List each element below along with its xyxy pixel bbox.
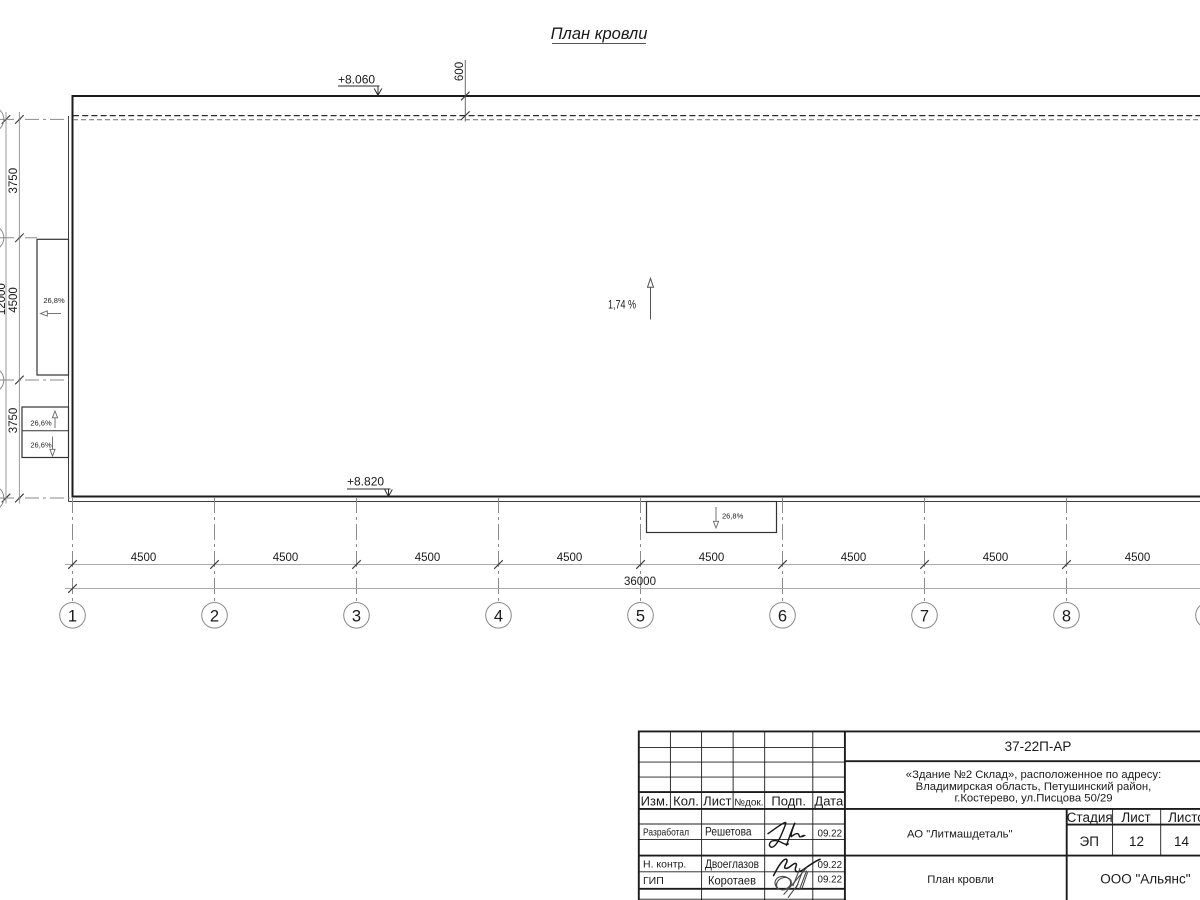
svg-text:09.22: 09.22 <box>818 829 843 840</box>
svg-text:09.22: 09.22 <box>818 875 843 886</box>
svg-text:4500: 4500 <box>131 552 157 564</box>
svg-text:+8.060: +8.060 <box>338 73 375 87</box>
svg-text:Изм.: Изм. <box>641 794 669 809</box>
svg-text:Лист: Лист <box>703 794 731 809</box>
svg-text:600: 600 <box>454 62 466 81</box>
svg-text:ГИП: ГИП <box>643 875 664 887</box>
svg-text:3750: 3750 <box>8 408 20 434</box>
svg-text:26,6%: 26,6% <box>30 441 52 450</box>
svg-text:Подп.: Подп. <box>771 794 806 809</box>
svg-text:09.22: 09.22 <box>818 860 843 871</box>
svg-text:План кровли: План кровли <box>927 874 994 886</box>
svg-text:ЭП: ЭП <box>1079 834 1098 849</box>
svg-text:1,74 %: 1,74 % <box>608 298 636 312</box>
svg-text:4500: 4500 <box>1125 552 1151 564</box>
svg-text:+8.820: +8.820 <box>347 475 384 489</box>
svg-text:4500: 4500 <box>699 552 725 564</box>
svg-text:№док.: №док. <box>734 798 763 809</box>
svg-text:Коротаев: Коротаев <box>708 876 756 888</box>
svg-text:ООО "Альянс": ООО "Альянс" <box>1100 872 1190 887</box>
svg-text:26,8%: 26,8% <box>722 512 744 521</box>
svg-text:г.Костерево, ул.Писцова 50/29: г.Костерево, ул.Писцова 50/29 <box>954 793 1112 805</box>
svg-text:37-22П-АР: 37-22П-АР <box>1005 739 1072 754</box>
svg-text:Двоеглазов: Двоеглазов <box>705 859 759 871</box>
svg-text:Листов: Листов <box>1168 810 1200 825</box>
svg-text:36000: 36000 <box>624 576 656 588</box>
svg-text:26,8%: 26,8% <box>43 296 65 305</box>
svg-text:Разработал: Разработал <box>643 827 689 839</box>
svg-text:26,6%: 26,6% <box>30 419 52 428</box>
svg-text:Владимирская область, Петушинс: Владимирская область, Петушинский район, <box>916 781 1152 793</box>
svg-text:4500: 4500 <box>415 552 441 564</box>
svg-text:4500: 4500 <box>273 552 299 564</box>
svg-text:«Здание №2 Склад», расположенн: «Здание №2 Склад», расположенное по адре… <box>906 769 1161 781</box>
svg-text:4500: 4500 <box>8 287 20 313</box>
svg-text:4500: 4500 <box>557 552 583 564</box>
svg-text:6: 6 <box>778 607 787 625</box>
svg-text:АО "Литмашдеталь": АО "Литмашдеталь" <box>907 829 1013 841</box>
svg-text:5: 5 <box>636 607 645 625</box>
svg-text:4500: 4500 <box>983 552 1009 564</box>
svg-text:12: 12 <box>1129 834 1144 849</box>
svg-text:7: 7 <box>920 607 929 625</box>
svg-text:8: 8 <box>1062 607 1071 625</box>
svg-text:3: 3 <box>352 607 361 625</box>
svg-text:Лист: Лист <box>1121 810 1150 825</box>
svg-text:Стадия: Стадия <box>1067 810 1113 825</box>
svg-text:Кол.: Кол. <box>673 794 699 809</box>
svg-text:14: 14 <box>1174 834 1190 849</box>
svg-text:1: 1 <box>68 607 77 625</box>
svg-text:Дата: Дата <box>814 794 844 809</box>
svg-text:План кровли: План кровли <box>551 25 648 43</box>
svg-text:Н. контр.: Н. контр. <box>643 859 686 871</box>
svg-text:2: 2 <box>210 607 219 625</box>
svg-text:12000: 12000 <box>0 283 8 315</box>
svg-text:3750: 3750 <box>8 168 20 194</box>
svg-text:4500: 4500 <box>841 552 867 564</box>
svg-text:Решетова: Решетова <box>705 827 752 839</box>
svg-text:4: 4 <box>494 607 503 625</box>
